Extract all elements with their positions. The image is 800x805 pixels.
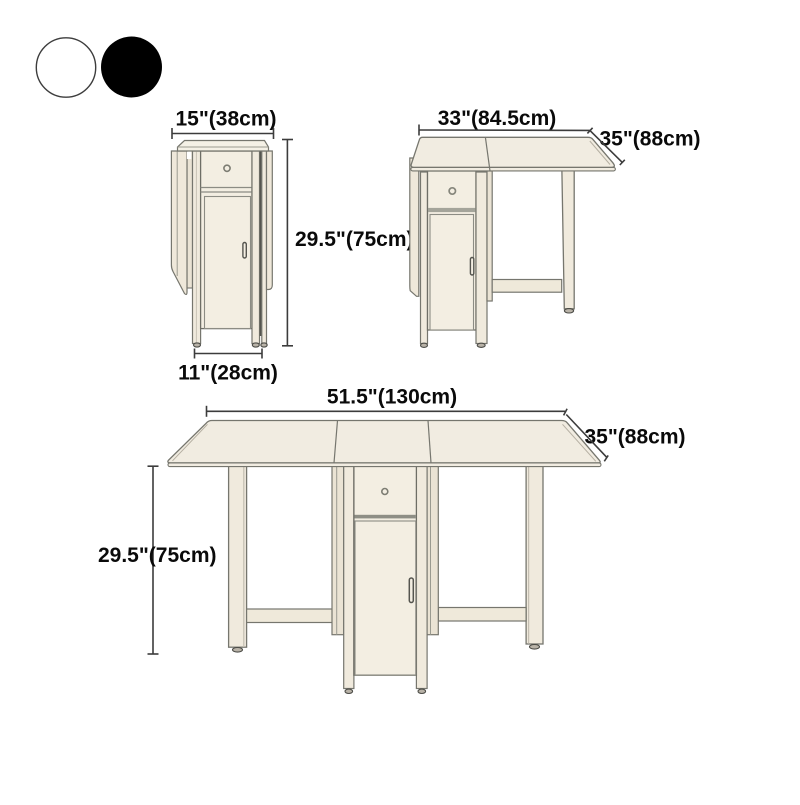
svg-text:15"(38cm): 15"(38cm) [175,108,276,131]
svg-text:51.5"(130cm): 51.5"(130cm) [327,386,457,409]
svg-text:35"(88cm): 35"(88cm) [599,128,700,151]
svg-text:11"(28cm): 11"(28cm) [178,362,278,385]
svg-text:33"(84.5cm): 33"(84.5cm) [438,107,557,130]
svg-text:29.5"(75cm): 29.5"(75cm) [295,228,414,251]
svg-text:35"(88cm): 35"(88cm) [584,426,685,449]
svg-text:29.5"(75cm): 29.5"(75cm) [98,544,217,567]
